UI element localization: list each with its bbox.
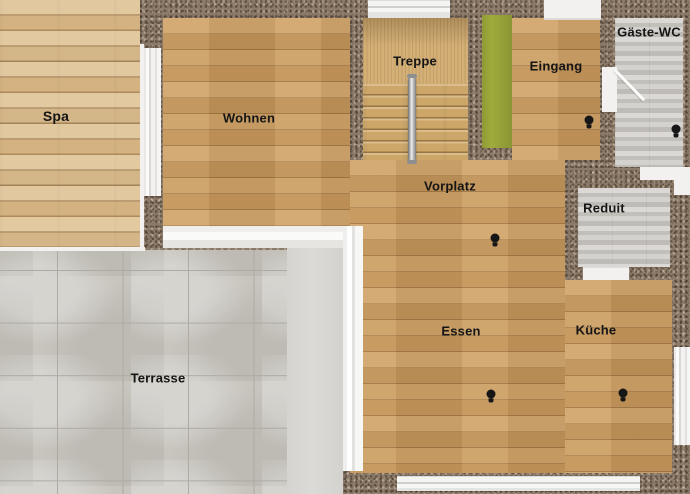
room-label-terrasse: Terrasse	[131, 372, 186, 385]
room-label-reduit: Reduit	[583, 202, 625, 215]
room-label-eingang: Eingang	[530, 60, 583, 73]
entry-green-wall	[482, 15, 512, 148]
room-eingang-floor	[512, 18, 600, 160]
sliding-door-west-essen	[343, 226, 363, 471]
window-top-treppe	[368, 0, 450, 18]
window-east-kueche	[674, 347, 690, 445]
room-label-spa: Spa	[43, 109, 69, 123]
room-kueche-floor	[565, 280, 672, 473]
ceiling-light-icon	[619, 389, 628, 402]
room-gaeste-wc-floor	[615, 18, 683, 167]
room-label-wohnen: Wohnen	[223, 112, 275, 125]
floor-plan: Spa Wohnen Treppe Eingang Gäste-WC Vorpl…	[0, 0, 690, 494]
entry-door-top	[544, 0, 601, 20]
window-west-wohnen	[144, 48, 161, 196]
gaeste-wc-door	[602, 67, 617, 112]
ceiling-light-icon	[491, 234, 500, 247]
room-label-gaeste-wc: Gäste-WC	[617, 26, 681, 39]
reduit-door	[583, 266, 629, 280]
stairs-handrail	[408, 76, 416, 162]
room-label-essen: Essen	[441, 325, 480, 338]
ceiling-light-icon	[585, 116, 594, 129]
room-spa-floor	[0, 0, 140, 247]
room-vorplatz-essen-floor	[350, 160, 565, 473]
terrasse-walkway	[287, 248, 343, 494]
room-label-vorplatz: Vorplatz	[424, 180, 476, 193]
room-label-treppe: Treppe	[393, 55, 437, 68]
window-sill-south-wohnen	[163, 226, 350, 248]
spa-border-bottom	[0, 247, 145, 251]
ceiling-light-icon	[672, 125, 681, 138]
wall-band-east-white-2	[674, 167, 690, 195]
ceiling-light-icon	[487, 390, 496, 403]
window-bottom-essen	[397, 476, 640, 491]
room-label-kueche: Küche	[576, 324, 617, 337]
